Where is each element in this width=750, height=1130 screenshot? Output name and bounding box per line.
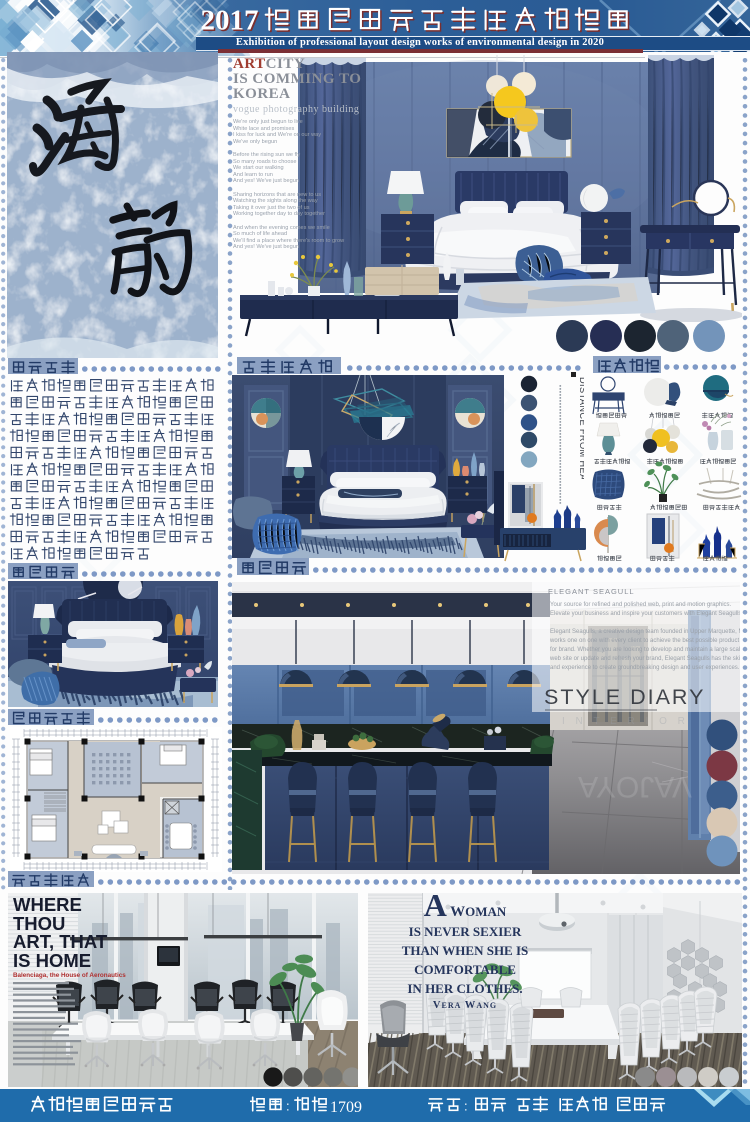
svg-text:ELEGANT SEAGULL: ELEGANT SEAGULL (548, 587, 635, 596)
svg-text:1709: 1709 (330, 1099, 362, 1115)
svg-text:for brand. Whether you are loo: for brand. Whether you are looking to de… (550, 647, 740, 653)
svg-text:Elevate your business and insp: Elevate your business and inspire your c… (550, 611, 740, 617)
svg-text::: : (286, 1099, 290, 1114)
svg-text:Elegant Seagulls, a creative d: Elegant Seagulls, a creative design team… (550, 629, 740, 635)
svg-text:and experience to create groun: and experience to create groundbreaking … (550, 665, 740, 671)
svg-text:VAJOYA: VAJOYA (578, 770, 692, 803)
svg-text:works one on one with every cl: works one on one with every client to ac… (549, 638, 739, 644)
svg-text::: : (464, 1099, 468, 1114)
svg-text:Your source for refined and po: Your source for refined and polished web… (550, 602, 732, 608)
svg-text:STYLE DIARY: STYLE DIARY (544, 685, 705, 709)
svg-text:web site or update and refresh: web site or update and refresh your bran… (549, 656, 740, 662)
svg-text:2017: 2017 (201, 5, 259, 37)
svg-text:I N T E R I O R: I N T E R I O R (562, 716, 689, 727)
